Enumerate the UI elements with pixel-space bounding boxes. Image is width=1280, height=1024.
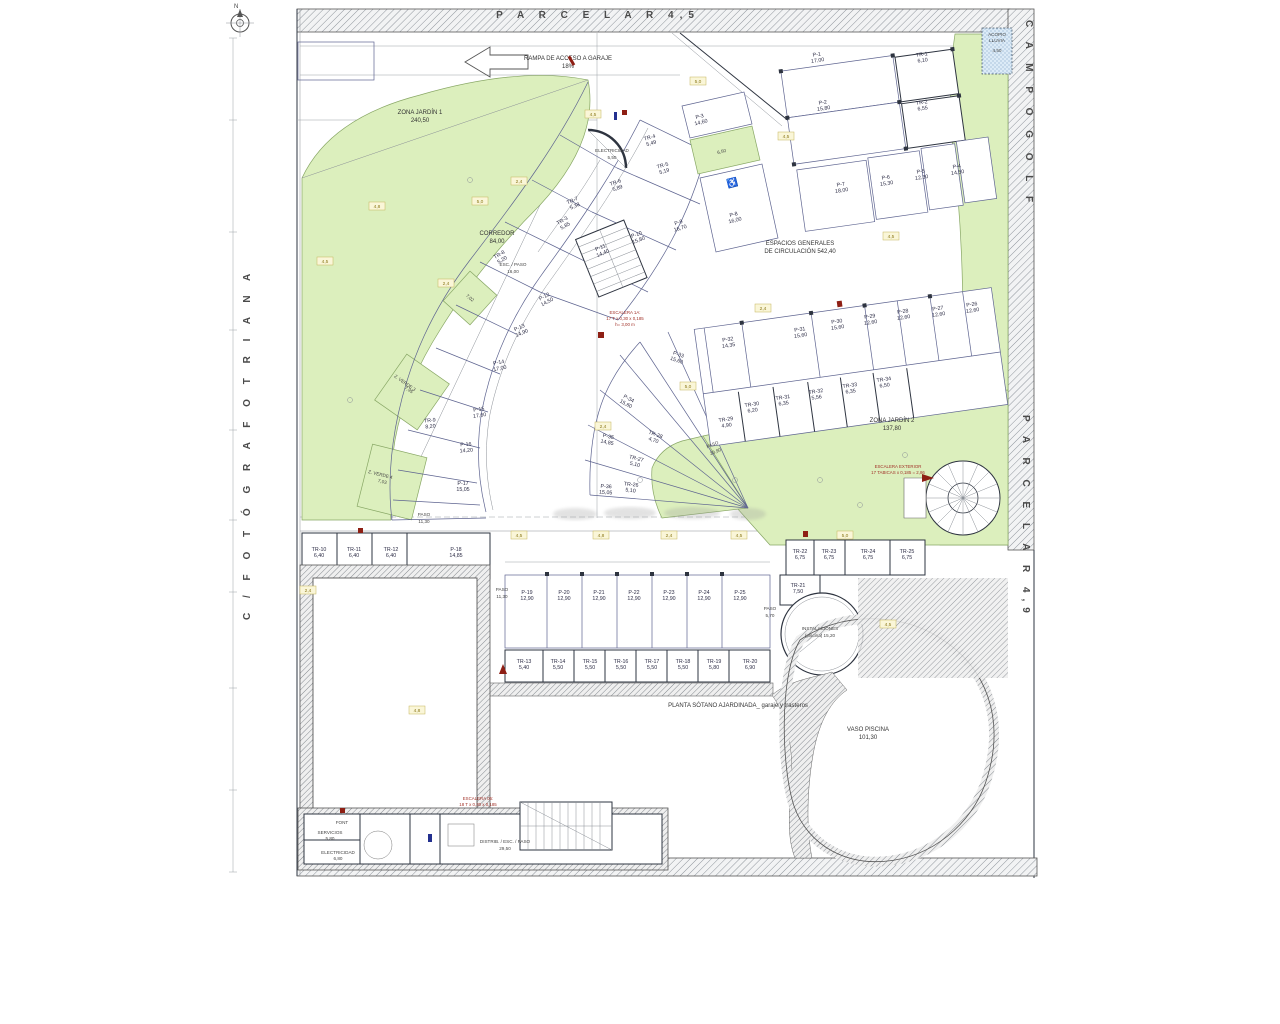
svg-text:P-2412,90: P-2412,90 xyxy=(697,590,710,602)
svg-text:PASO: PASO xyxy=(496,587,509,592)
svg-text:P-1417,00: P-1417,00 xyxy=(492,359,508,374)
svg-text:P-3315,60: P-3315,60 xyxy=(669,350,685,366)
street-label-fotografo-triana: C / F O T Ó G R A F O T R I A N A xyxy=(240,268,253,620)
floor-plan-drawing: P A R C E L A R 4,5 C A M P O G O L F P … xyxy=(0,0,1280,1024)
espacios-label: ESPACIOS GENERALES xyxy=(766,241,835,247)
svg-text:TR-26,55: TR-26,55 xyxy=(916,99,929,113)
svg-text:4,5: 4,5 xyxy=(736,533,743,539)
svg-text:ACOPIO: ACOPIO xyxy=(988,32,1006,37)
svg-text:6,80: 6,80 xyxy=(334,856,343,861)
patio-lightwell xyxy=(300,565,490,823)
svg-text:h= 3,00 m: h= 3,00 m xyxy=(615,322,635,327)
svg-text:4,8: 4,8 xyxy=(414,708,421,714)
svg-text:TR-55,19: TR-55,19 xyxy=(656,162,671,177)
north-arrow-icon: N xyxy=(226,4,254,37)
svg-text:4,5: 4,5 xyxy=(322,259,329,265)
svg-text:P-2312,90: P-2312,90 xyxy=(662,590,675,602)
svg-text:TR-35,85: TR-35,85 xyxy=(556,216,572,232)
ramp-label: RAMPA DE ACCESO A GARAJE xyxy=(524,56,612,62)
svg-text:TR-275,10: TR-275,10 xyxy=(627,454,644,469)
svg-text:5,50: 5,50 xyxy=(608,155,617,160)
svg-text:4,50: 4,50 xyxy=(993,48,1002,53)
svg-text:PASO: PASO xyxy=(418,512,431,517)
svg-text:2,4: 2,4 xyxy=(600,424,607,430)
svg-text:29,50: 29,50 xyxy=(499,846,511,851)
svg-text:4,8: 4,8 xyxy=(374,204,381,210)
svg-text:240,50: 240,50 xyxy=(411,118,430,124)
svg-text:2,4: 2,4 xyxy=(760,306,767,312)
svg-text:TR-45,49: TR-45,49 xyxy=(643,134,658,149)
svg-text:(piscina) 15,20: (piscina) 15,20 xyxy=(805,633,836,638)
svg-text:5,0: 5,0 xyxy=(695,79,702,85)
svg-text:P-3514,85: P-3514,85 xyxy=(600,433,616,448)
svg-text:P-117,00: P-117,00 xyxy=(810,51,825,65)
stair-05 xyxy=(520,802,612,850)
svg-text:4,8: 4,8 xyxy=(598,533,605,539)
svg-text:16,00: 16,00 xyxy=(507,269,519,274)
svg-text:TR-116,40: TR-116,40 xyxy=(347,547,361,559)
svg-text:ELECTRICIDAD: ELECTRICIDAD xyxy=(321,850,355,855)
svg-text:5,0: 5,0 xyxy=(842,533,849,539)
jardin1-label: ZONA JARDÍN 1 xyxy=(398,109,443,116)
svg-text:P-2012,90: P-2012,90 xyxy=(557,590,570,602)
svg-text:P-3415,60: P-3415,60 xyxy=(618,393,635,410)
svg-text:P-1614,20: P-1614,20 xyxy=(459,442,473,455)
svg-text:TR-16,10: TR-16,10 xyxy=(916,51,929,65)
svg-text:SERVICIOS: SERVICIOS xyxy=(318,830,343,835)
svg-text:DISTRIB. / ESC. / PASO: DISTRIB. / ESC. / PASO xyxy=(480,839,531,844)
svg-text:5,70: 5,70 xyxy=(766,613,775,618)
left-property-line xyxy=(297,9,300,876)
trastero-row-bottom xyxy=(505,650,770,682)
pool-label: VASO PISCINA xyxy=(847,727,889,733)
svg-text:P-3615,05: P-3615,05 xyxy=(599,484,613,497)
svg-text:P-1912,90: P-1912,90 xyxy=(520,590,533,602)
svg-text:P-916,70: P-916,70 xyxy=(671,218,687,233)
svg-text:11,30: 11,30 xyxy=(418,519,430,524)
svg-text:101,30: 101,30 xyxy=(859,735,878,741)
svg-text:TR-284,70: TR-284,70 xyxy=(645,430,663,446)
svg-text:5,0: 5,0 xyxy=(685,384,692,390)
svg-text:P-1214,50: P-1214,50 xyxy=(537,291,554,308)
jardin2-label: ZONA JARDÍN 2 xyxy=(870,417,915,424)
svg-text:LLUVIA: LLUVIA xyxy=(989,38,1006,43)
svg-text:ESCALERA 1A:: ESCALERA 1A: xyxy=(610,310,641,315)
svg-text:5,0: 5,0 xyxy=(477,199,484,205)
svg-text:4,5: 4,5 xyxy=(888,234,895,240)
svg-text:2,4: 2,4 xyxy=(666,533,673,539)
svg-text:ELECTRICIDAD: ELECTRICIDAD xyxy=(595,148,629,153)
svg-text:ESCALERA 05:: ESCALERA 05: xyxy=(463,796,494,801)
svg-text:137,80: 137,80 xyxy=(883,426,902,432)
street-label-top: P A R C E L A R 4,5 xyxy=(496,10,700,21)
svg-text:4,5: 4,5 xyxy=(885,622,892,628)
ramp-direction-arrow xyxy=(465,47,528,77)
svg-text:17 TABICAS x 0,185 = 2,86: 17 TABICAS x 0,185 = 2,86 xyxy=(871,470,925,475)
blueprint-page: { "streets": { "top": "P A R C E L A R 4… xyxy=(0,0,1280,1024)
svg-text:2,4: 2,4 xyxy=(443,281,450,287)
svg-text:ESCALERA EXTERIOR: ESCALERA EXTERIOR xyxy=(875,464,922,469)
svg-text:INSTALACIONES: INSTALACIONES xyxy=(802,626,838,631)
svg-text:P-1314,90: P-1314,90 xyxy=(512,323,529,339)
svg-text:4,5: 4,5 xyxy=(783,134,790,140)
svg-text:N: N xyxy=(234,4,238,10)
svg-text:FONT: FONT xyxy=(336,820,349,825)
svg-text:5,80: 5,80 xyxy=(326,836,335,841)
svg-text:DE CIRCULACIÓN 542,40: DE CIRCULACIÓN 542,40 xyxy=(764,248,836,255)
street-label-campo-golf: C A M P O G O L F xyxy=(1023,20,1034,208)
svg-text:P-2512,90: P-2512,90 xyxy=(733,590,746,602)
svg-text:P-2112,90: P-2112,90 xyxy=(592,590,605,602)
svg-text:P-2212,90: P-2212,90 xyxy=(627,590,640,602)
svg-text:11,30: 11,30 xyxy=(496,594,508,599)
corredor-label: CORREDOR xyxy=(479,231,515,237)
svg-text:4,5: 4,5 xyxy=(590,112,597,118)
svg-text:TR-265,10: TR-265,10 xyxy=(623,481,639,494)
svg-text:2,4: 2,4 xyxy=(516,179,523,185)
svg-text:P-1715,05: P-1715,05 xyxy=(456,481,469,493)
svg-text:P-1517,60: P-1517,60 xyxy=(472,406,487,420)
svg-text:84,00: 84,00 xyxy=(489,239,505,245)
svg-text:P-1814,85: P-1814,85 xyxy=(449,547,462,559)
svg-text:4,5: 4,5 xyxy=(516,533,523,539)
street-label-parcela-r49: P A R C E L A R 4,9 xyxy=(1020,415,1031,619)
svg-text:17 T x 0,30 x 0,185: 17 T x 0,30 x 0,185 xyxy=(606,316,644,321)
svg-text:P-1015,80: P-1015,80 xyxy=(629,230,646,246)
acopio-lluvia-tank: ACOPIO LLUVIA 4,50 xyxy=(982,28,1012,74)
svg-text:18 T x 0,30 x 0,185: 18 T x 0,30 x 0,185 xyxy=(459,802,497,807)
svg-text:TR-98,20: TR-98,20 xyxy=(424,417,437,430)
svg-text:PASO: PASO xyxy=(764,606,777,611)
planta-title: PLANTA SÓTANO AJARDINADA_ garaje y trast… xyxy=(668,702,808,709)
svg-text:2,4: 2,4 xyxy=(305,588,312,594)
